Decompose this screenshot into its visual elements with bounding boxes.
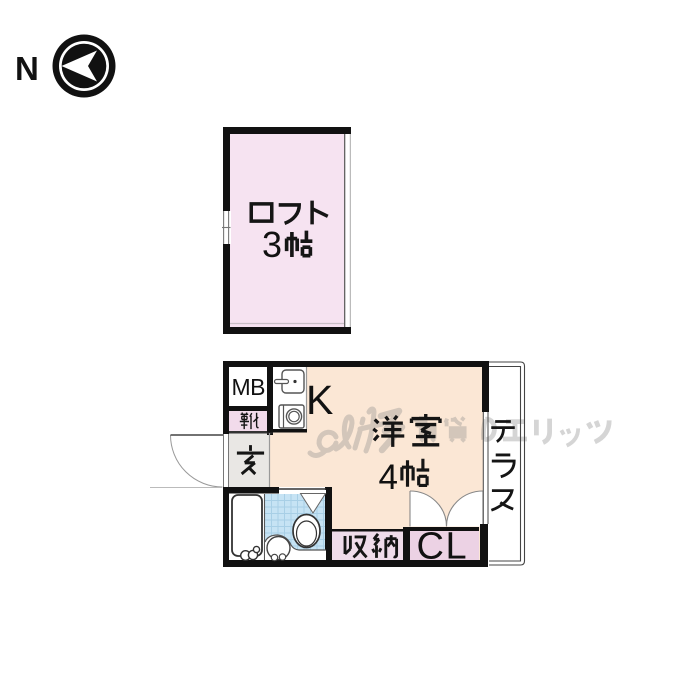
svg-text:N: N — [15, 50, 39, 87]
svg-text:4: 4 — [379, 458, 398, 497]
svg-text:MB: MB — [232, 374, 266, 400]
svg-text:3: 3 — [262, 224, 282, 265]
svg-text:CL: CL — [417, 526, 469, 568]
svg-text:K: K — [306, 377, 333, 423]
